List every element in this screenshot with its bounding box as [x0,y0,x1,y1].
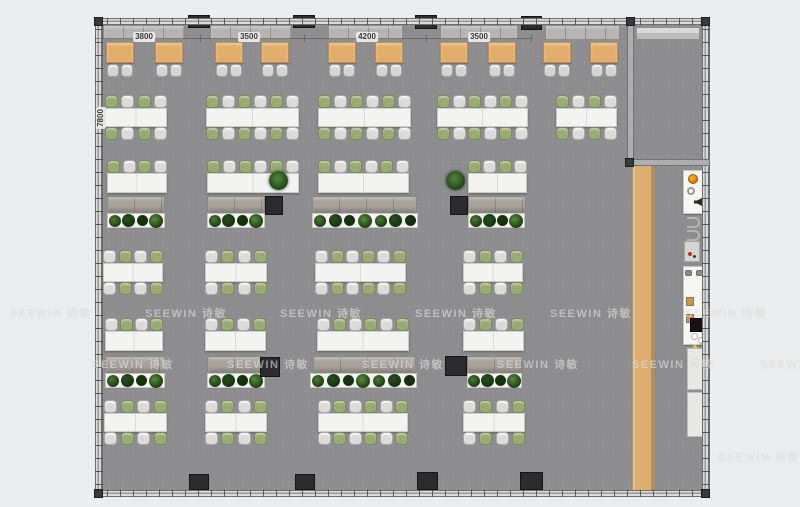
watermark-text: SEEWIN 诗敏 [415,305,497,321]
wall-right [702,18,710,497]
planter-plant [497,215,508,226]
planter-plant [388,374,401,387]
dimension-tick [95,35,96,42]
desk-chair [588,95,601,108]
dimension-tick [200,35,201,42]
desk-chair [331,282,344,295]
row-d-chairs [103,282,163,295]
desk-chair [254,400,267,413]
watermark-text: SEEWIN 诗敏 [550,305,632,321]
desk-chair [494,282,507,295]
desk-chair [103,250,116,263]
storage-cabinet [468,196,526,213]
desk-table [468,173,527,193]
desk-chair [207,160,220,173]
desk-table [105,331,163,351]
desk-chair [205,250,218,263]
desk-chair [479,282,492,295]
desk-chair [350,95,363,108]
desk-chair [349,400,362,413]
desk-chair [318,127,331,140]
desk-chair [254,95,267,108]
desk-chair [395,400,408,413]
planter-box [107,213,165,228]
desk-chair [556,95,569,108]
desk-chair [238,282,251,295]
desk-chair [382,95,395,108]
planter-plant [373,375,385,387]
desk-chair [334,160,347,173]
booth-chair [605,64,617,77]
row-b-chairs [206,127,299,140]
storage-cabinet [312,196,417,213]
planter-plant [343,375,354,386]
booth-chair [262,64,274,77]
desk-chair [515,127,528,140]
dimension-label: 3800 [133,32,155,42]
watermark-text: SEEWIN 诗敏 [280,305,362,321]
desk-chair [105,318,118,331]
watermark-text: SEEWIN 诗敏 [92,356,174,372]
row-f-chairs [205,432,267,445]
desk-chair [333,400,346,413]
planter-box [468,213,525,228]
row-b-chairs [556,95,617,108]
desk-chair [496,432,509,445]
dimension-label: 3500 [238,32,260,42]
desk-chair [137,432,150,445]
wall-corner-post [626,17,635,26]
desk-chair [437,95,450,108]
booth-chair [376,64,388,77]
desk-chair [206,95,219,108]
meeting-room-credenza [636,27,700,40]
desk-chair [221,432,234,445]
wood-corridor-strip [632,166,654,490]
desk-chair [107,160,120,173]
booth-chair [276,64,288,77]
row-b-chairs [437,95,528,108]
booth-chair [489,64,501,77]
desk-chair [334,127,347,140]
desk-chair [366,127,379,140]
row-b-chairs [206,95,299,108]
pantry-dot-red [688,252,692,256]
desk-chair [254,282,267,295]
desk-chair [238,432,251,445]
desk-table [463,263,523,282]
row-b-chairs [318,95,411,108]
desk-chair [479,432,492,445]
desk-chair [286,127,299,140]
desk-chair [377,282,390,295]
planter-plant [509,214,523,228]
desk-table [318,108,411,127]
column-pillar [417,472,438,490]
planter-plant [329,214,342,227]
desk-chair [119,250,132,263]
desk-chair [120,318,133,331]
row-f-chairs [205,400,267,413]
desk-chair [604,95,617,108]
desk-chair [468,95,481,108]
desk-chair [380,432,393,445]
desk-chair [484,127,497,140]
desk-chair [134,250,147,263]
wall-bottom [95,490,710,497]
desk-chair [154,95,167,108]
desk-chair [138,95,151,108]
desk-chair [134,282,147,295]
desk-chair [239,160,252,173]
desk-chair [365,160,378,173]
pantry-ring [687,187,695,195]
desk-chair [463,400,476,413]
desk-chair [270,127,283,140]
desk-chair [364,400,377,413]
planter-plant [209,375,221,387]
planter-plant [481,374,494,387]
desk-table [104,413,167,432]
desk-table [315,263,406,282]
row-c-chairs [318,160,409,173]
planter-plant [358,214,372,228]
dimension-tick [304,35,305,42]
desk-table [556,108,617,127]
row-d-chairs [463,250,523,263]
desk-chair [604,127,617,140]
planter-plant [149,374,163,388]
row-b-chairs [105,95,167,108]
planter-plant [470,215,482,227]
dimension-label: 3500 [468,32,490,42]
wall-corner-post [94,489,103,498]
desk-chair [393,282,406,295]
desk-chair [254,432,267,445]
desk-chair [238,400,251,413]
booth-table [590,42,618,63]
pantry-dot-dark [693,255,696,258]
desk-chair [103,282,116,295]
desk-chair [377,250,390,263]
watermark-text: SEEWIN 诗敏 [685,305,767,321]
watermark-text: SEEWIN 诗敏 [632,356,714,372]
desk-chair [350,127,363,140]
row-b-chairs [556,127,617,140]
planter-plant [483,214,496,227]
desk-chair [223,160,236,173]
desk-table [206,108,299,127]
desk-chair [104,432,117,445]
desk-chair [572,127,585,140]
planter-plant [312,375,324,387]
row-b-chairs [105,127,167,140]
desk-chair [496,400,509,413]
desk-chair [380,160,393,173]
desk-chair [121,127,134,140]
booth-chair [170,64,182,77]
desk-chair [453,95,466,108]
desk-chair [484,95,497,108]
desk-table [463,413,525,432]
planter-plant [356,374,370,388]
desk-table [318,173,409,193]
desk-table [463,331,524,351]
planter-plant [468,375,480,387]
booth-bench [545,25,620,40]
pantry-arc [687,217,700,228]
desk-chair [254,160,267,173]
desk-chair [380,318,393,331]
column-pillar [265,196,283,215]
planter-plant [222,214,235,227]
desk-chair [238,250,251,263]
room-partition [627,18,634,166]
desk-chair [221,400,234,413]
desk-chair [238,127,251,140]
planter-plant [107,375,119,387]
row-f-chairs [318,432,408,445]
desk-chair [286,160,299,173]
booth-chair [503,64,515,77]
wall-top [95,18,710,25]
desk-chair [315,250,328,263]
row-d-chairs [315,250,406,263]
column-pillar [520,472,543,490]
planter-box [310,373,417,388]
row-b-chairs [437,127,528,140]
desk-chair [254,127,267,140]
desk-chair [510,282,523,295]
watermark-text: SEEWIN 诗敏 [145,305,227,321]
planter-plant [149,214,163,228]
desk-chair [349,160,362,173]
desk-chair [494,250,507,263]
pantry-appliance [684,241,700,262]
row-d-chairs [315,282,406,295]
row-f-chairs [318,400,408,413]
row-c-chairs [107,160,167,173]
desk-table [437,108,528,127]
desk-chair [479,400,492,413]
desk-chair [318,95,331,108]
desk-chair [362,250,375,263]
desk-chair [206,127,219,140]
desk-table [205,263,267,282]
desk-chair [222,95,235,108]
room-partition [627,159,710,166]
booth-chair [390,64,402,77]
wall-corner-post [625,158,634,167]
desk-chair [334,95,347,108]
desk-chair [238,95,251,108]
desk-chair [205,400,218,413]
booth-chair [343,64,355,77]
column-pillar [450,196,468,215]
potted-plant [269,171,288,190]
desk-chair [463,282,476,295]
desk-chair [453,127,466,140]
desk-chair [512,432,525,445]
desk-chair [468,127,481,140]
storage-cabinet [107,196,165,213]
desk-chair [121,95,134,108]
desk-chair [511,318,524,331]
planter-plant [405,215,416,226]
booth-table [543,42,571,63]
desk-chair [479,250,492,263]
planter-plant [344,215,355,226]
desk-chair [366,95,379,108]
dimension-label: 7800 [96,107,106,129]
desk-chair [221,250,234,263]
row-d-chairs [205,250,267,263]
desk-chair [253,318,266,331]
desk-table [105,108,167,127]
booth-table [215,42,243,63]
potted-plant [446,171,465,190]
desk-chair [463,432,476,445]
planter-box [467,373,522,388]
desk-chair [463,250,476,263]
planter-box [312,213,418,228]
planter-plant [136,375,147,386]
desk-table [103,263,163,282]
wall-corner-post [701,489,710,498]
desk-chair [514,160,527,173]
booth-chair [544,64,556,77]
booth-chair [591,64,603,77]
desk-chair [382,127,395,140]
desk-chair [318,400,331,413]
desk-chair [205,432,218,445]
pantry-stool [685,270,692,276]
planter-box [207,213,265,228]
dimension-tick [426,35,427,42]
desk-table [205,331,266,351]
planter-plant [237,215,248,226]
desk-chair [123,160,136,173]
desk-chair [572,95,585,108]
booth-table [488,42,516,63]
desk-chair [331,250,344,263]
wall-left [95,18,103,497]
desk-chair [254,250,267,263]
desk-chair [512,400,525,413]
desk-table [205,413,267,432]
planter-plant [314,215,326,227]
desk-chair [221,282,234,295]
planter-plant [222,374,235,387]
desk-chair [556,127,569,140]
booth-table [328,42,356,63]
desk-chair [393,250,406,263]
desk-chair [468,160,481,173]
row-f-chairs [463,400,525,413]
booth-table [106,42,134,63]
booth-chair [441,64,453,77]
desk-chair [138,160,151,173]
desk-chair [499,160,512,173]
desk-chair [150,250,163,263]
booth-chair [107,64,119,77]
planter-plant [327,374,340,387]
desk-chair [380,400,393,413]
dimension-line [95,38,531,39]
desk-chair [364,432,377,445]
dimension-tick [531,35,532,42]
column-pillar [295,474,315,490]
desk-chair [138,127,151,140]
row-d-chairs [463,282,523,295]
pantry-circle-white [691,333,698,340]
desk-chair [121,432,134,445]
desk-chair [270,95,283,108]
planter-plant [122,214,135,227]
booth-chair [329,64,341,77]
storage-cabinet [207,196,265,213]
desk-chair [395,432,408,445]
planter-box [207,373,265,388]
desk-chair [437,127,450,140]
row-f-chairs [463,432,525,445]
watermark-text: SEEWIN 诗敏 [227,356,309,372]
booth-chair [156,64,168,77]
desk-chair [333,432,346,445]
desk-chair [286,95,299,108]
desk-chair [154,400,167,413]
booth-table [440,42,468,63]
planter-plant [137,215,148,226]
booth-chair [216,64,228,77]
watermark-text: SEEWIN 诗敏 [760,356,800,372]
dimension-left: 7800 [90,98,112,138]
watermark-text: SEEWIN 诗敏 [497,356,579,372]
planter-plant [507,374,521,388]
row-c-chairs [207,160,299,173]
column-pillar [445,356,467,376]
desk-chair [346,282,359,295]
pantry-arc [687,230,700,241]
desk-chair [154,160,167,173]
desk-chair [150,282,163,295]
planter-plant [121,374,134,387]
booth-chair [121,64,133,77]
planter-plant [495,375,506,386]
booth-chair [455,64,467,77]
planter-plant [404,375,415,386]
desk-chair [237,318,250,331]
booth-chair [558,64,570,77]
desk-chair [499,127,512,140]
planter-plant [209,215,221,227]
desk-chair [515,95,528,108]
desk-chair [396,318,409,331]
row-d-chairs [205,282,267,295]
watermark-text: SEEWIN 诗敏 [718,449,800,465]
desk-chair [121,400,134,413]
desk-chair [154,432,167,445]
row-f-chairs [104,432,167,445]
desk-chair [119,282,132,295]
desk-table [317,331,409,351]
planter-box [105,373,165,388]
column-pillar [189,474,209,490]
planter-plant [237,375,248,386]
desk-chair [349,432,362,445]
desk-chair [318,160,331,173]
desk-chair [104,400,117,413]
